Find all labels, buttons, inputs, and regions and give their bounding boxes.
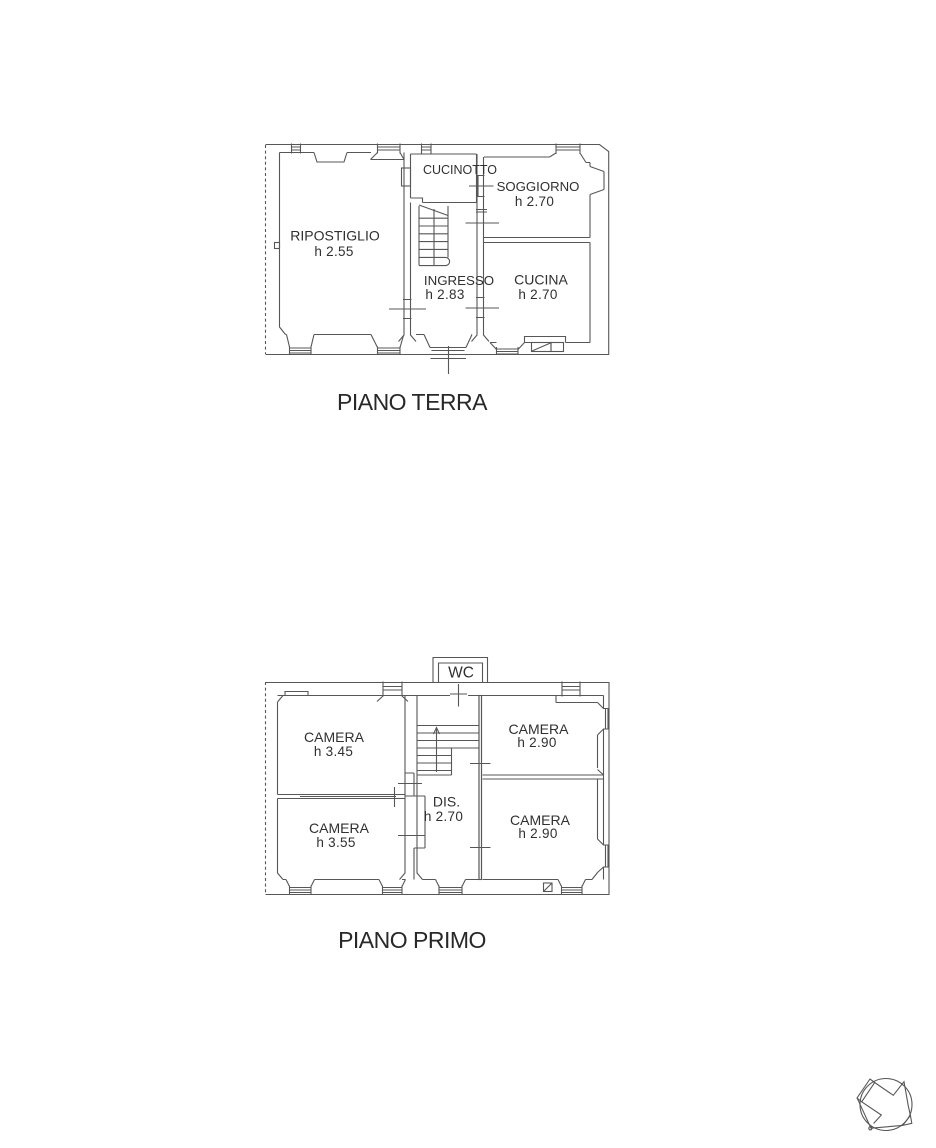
svg-text:WC: WC — [448, 665, 474, 682]
svg-text:DIS.: DIS. — [433, 794, 460, 810]
svg-text:CUCINOTTO: CUCINOTTO — [423, 163, 497, 177]
svg-text:h 2.70: h 2.70 — [424, 809, 463, 824]
svg-text:h 3.55: h 3.55 — [316, 835, 355, 850]
svg-text:h 2.90: h 2.90 — [517, 735, 556, 750]
svg-text:h 3.45: h 3.45 — [314, 744, 353, 759]
svg-text:h 2.83: h 2.83 — [425, 287, 464, 302]
svg-text:SOGGIORNO: SOGGIORNO — [497, 179, 580, 194]
svg-text:h 2.70: h 2.70 — [515, 194, 554, 209]
svg-text:h 2.70: h 2.70 — [518, 287, 557, 302]
svg-text:h 2.90: h 2.90 — [518, 826, 557, 841]
svg-text:CAMERA: CAMERA — [304, 729, 365, 745]
svg-text:PIANO TERRA: PIANO TERRA — [337, 389, 488, 415]
svg-text:CUCINA: CUCINA — [514, 272, 568, 288]
svg-text:PIANO PRIMO: PIANO PRIMO — [338, 927, 486, 953]
svg-text:h 2.55: h 2.55 — [314, 244, 353, 259]
svg-text:INGRESSO: INGRESSO — [424, 273, 494, 288]
svg-text:RIPOSTIGLIO: RIPOSTIGLIO — [290, 228, 380, 244]
svg-text:CAMERA: CAMERA — [309, 820, 370, 836]
